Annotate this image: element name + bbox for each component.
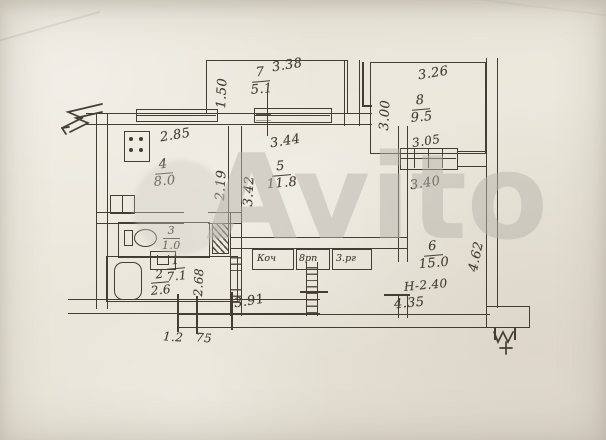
room-area: 9.5 [410, 109, 433, 125]
dim-balcony-side: 1.50 [214, 77, 231, 108]
dim-tick [196, 296, 198, 334]
dim-room6-right: 4.62 [466, 240, 487, 273]
dim-tick [300, 291, 328, 293]
room-area: 15.0 [418, 254, 450, 271]
dim-kitchen-top: 2.85 [159, 126, 192, 146]
wall-break-icon-bottom [488, 330, 532, 358]
paper-crease [460, 0, 606, 18]
dim-room5-top: 3.44 [269, 132, 302, 152]
room-number: 8 [410, 93, 430, 110]
closet-label-3: 3.рг [336, 253, 356, 264]
dim-small-right: 75 [196, 330, 213, 345]
room-label-hall: 1 7.1 [165, 253, 188, 283]
dim-room5-side: 3.42 [241, 175, 258, 206]
wall-right [486, 58, 498, 308]
dim-room6-bottom: 4.35 [393, 295, 425, 313]
kitchen-sink-icon [110, 195, 135, 214]
stove-burner [139, 148, 143, 152]
room-label-room5: 5 11.8 [265, 159, 298, 192]
closet-label-1: Коч [257, 253, 276, 264]
window-kitchen [136, 109, 218, 122]
stove-icon [124, 131, 150, 162]
wall-window-to-right [458, 151, 486, 167]
window-tick [414, 149, 415, 168]
room-number: 5 [271, 159, 291, 176]
door-hatch [256, 109, 271, 121]
room-label-room8: 8 9.5 [409, 93, 433, 125]
room8-jog [362, 105, 372, 107]
room-area: 5.1 [250, 81, 273, 97]
bathtub-icon [114, 262, 142, 300]
floor-plan-scan: 3.38 7 5.1 1.50 3.26 8 9.5 3.00 3.05 3.4… [0, 0, 606, 440]
room-label-balcony: 7 5.1 [249, 65, 273, 97]
wall-break-icon-left [56, 98, 104, 142]
dim-bath-side: 2.68 [191, 268, 206, 297]
window-room8-room6 [400, 148, 458, 170]
toilet-icon [124, 230, 133, 246]
dim-corridor: 3.40 [409, 174, 442, 194]
stove-burner [129, 148, 133, 152]
window-tick [428, 149, 429, 168]
room-area: 2.6 [150, 282, 171, 297]
paper-crease [0, 11, 100, 43]
room8-jog [362, 62, 364, 106]
stove-burner [139, 137, 143, 141]
dim-room8-side: 3.00 [377, 99, 394, 130]
wall-room5-bottom [230, 237, 408, 249]
dim-tick [177, 294, 179, 332]
room-label-room6: 6 15.0 [417, 239, 450, 272]
wall-balcony-right [344, 60, 360, 126]
wall-hall-right [306, 262, 318, 316]
window-tick [442, 149, 443, 168]
wall-stub-bottom-right [486, 306, 530, 328]
room-number: 7 [250, 65, 270, 82]
watermark-blob [133, 160, 228, 255]
room-area: 11.8 [266, 174, 298, 191]
window-mullion [137, 115, 216, 116]
room-area: 7.1 [166, 268, 187, 283]
wall-bottom [178, 314, 490, 328]
dim-small-left: 1.2 [163, 329, 184, 344]
room-number: 1 [166, 253, 185, 269]
room6-height-note: Н-2.40 [403, 276, 448, 294]
stove-burner [129, 137, 133, 141]
closet-label-2: 8рп [299, 253, 317, 264]
room-number: 6 [423, 239, 443, 256]
sink-divider [122, 196, 123, 212]
leader-line-balcony [267, 90, 268, 136]
balcony-door-window [254, 108, 332, 123]
